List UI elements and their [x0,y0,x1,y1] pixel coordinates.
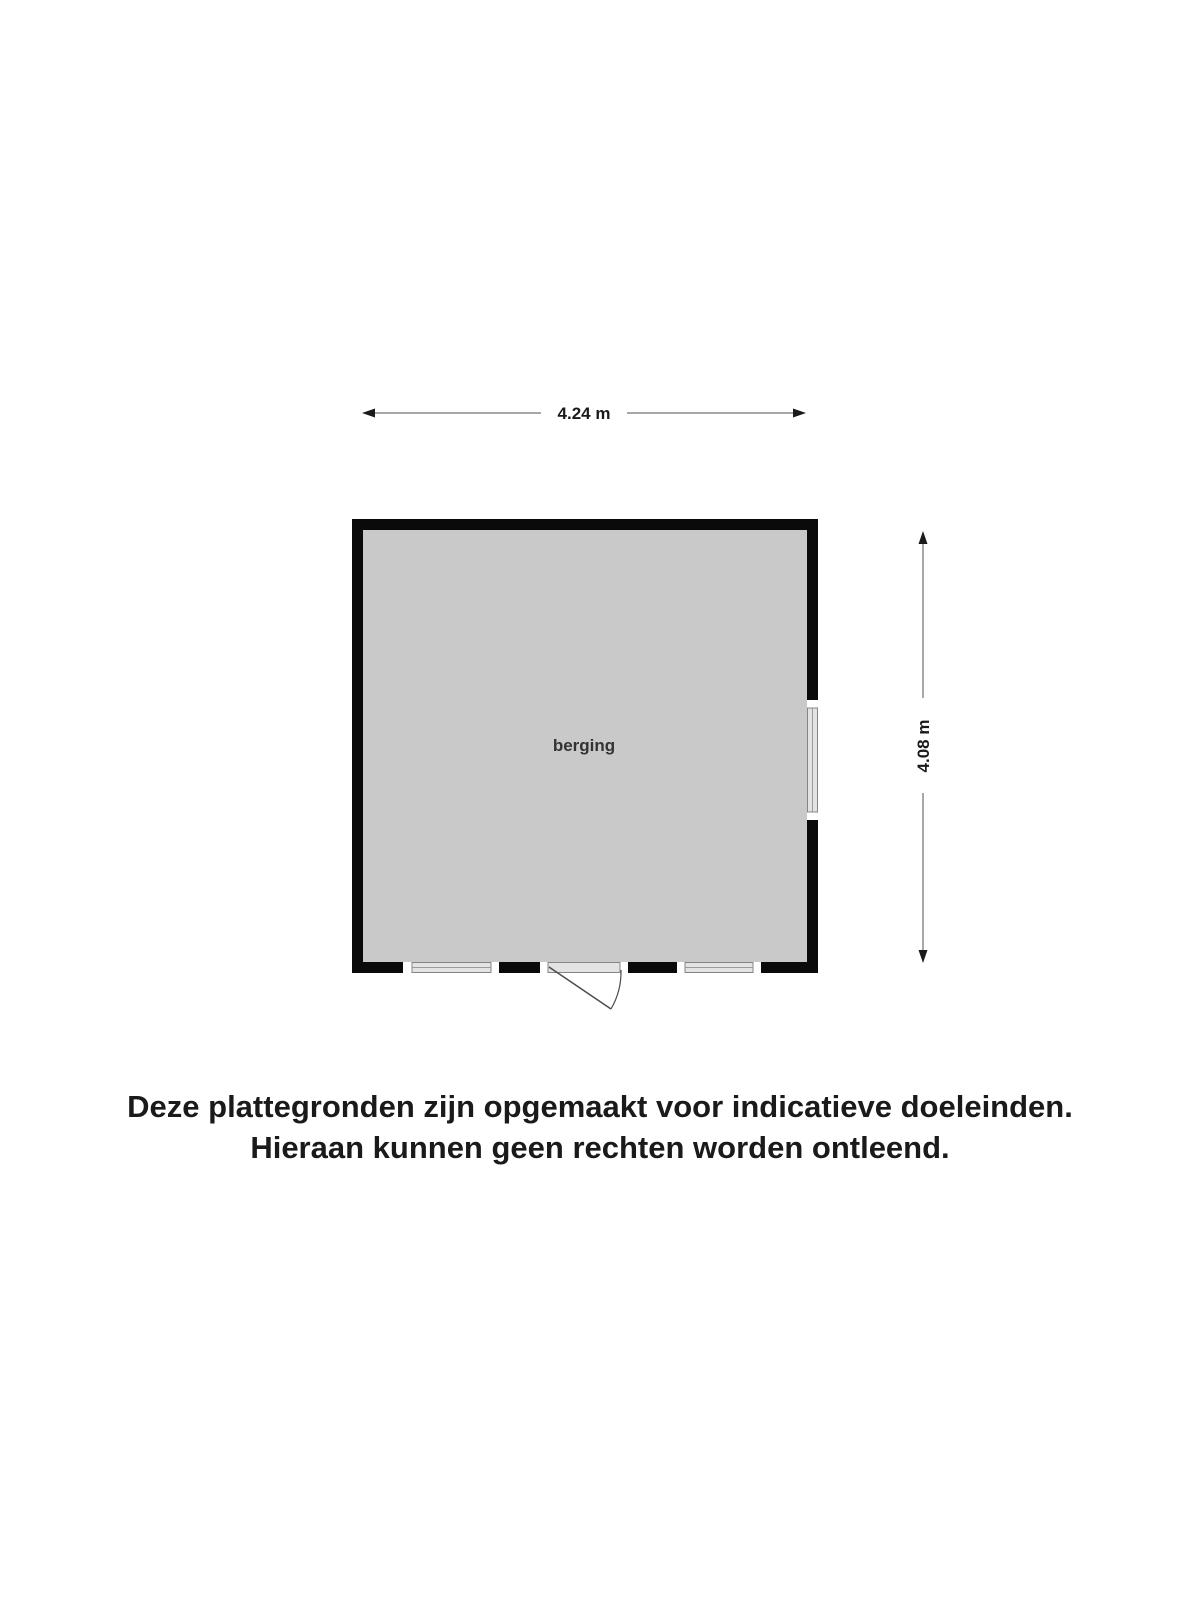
window-cap [753,962,761,973]
window-right [807,700,818,820]
window-cap [491,962,499,973]
disclaimer-line-1: Deze plattegronden zijn opgemaakt voor i… [0,1086,1200,1127]
door-leaf [549,967,611,1009]
window-bottom-right [677,962,761,973]
window-cap [807,812,818,820]
door [540,962,628,1009]
arrowhead-down-icon [919,950,928,963]
dimension-height: 4.08 m [914,531,933,963]
disclaimer: Deze plattegronden zijn opgemaakt voor i… [0,1086,1200,1168]
window-cap [403,962,412,973]
arrowhead-left-icon [362,409,375,418]
arrowhead-right-icon [793,409,806,418]
room-label: berging [553,736,615,755]
floor-plan-drawing: 4.24 m 4.08 m [0,0,1200,1060]
floor-plan-page: 4.24 m 4.08 m [0,0,1200,1600]
door-swing-arc [611,970,621,1009]
dimension-width-label: 4.24 m [558,404,611,423]
window-bottom-left [403,962,499,973]
disclaimer-line-2: Hieraan kunnen geen rechten worden ontle… [0,1127,1200,1168]
window-cap [677,962,685,973]
window-cap [807,700,818,708]
door-jamb [540,962,548,973]
dimension-width: 4.24 m [362,404,806,423]
dimension-height-label: 4.08 m [914,720,933,773]
arrowhead-up-icon [919,531,928,544]
door-threshold [548,963,620,973]
